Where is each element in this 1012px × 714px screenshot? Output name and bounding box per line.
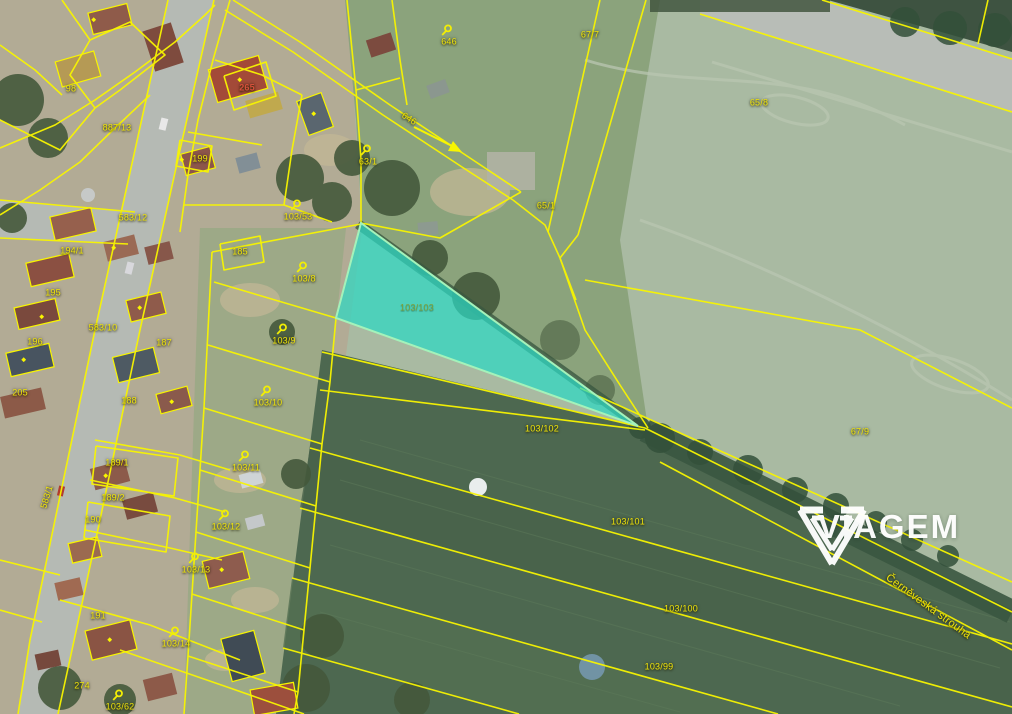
- parcel-label: 194/1: [60, 247, 84, 256]
- parcel-label: 583/12: [119, 214, 148, 223]
- boundary-pin-icon: [296, 261, 308, 273]
- boundary-pin-icon: [188, 552, 200, 564]
- parcel-label: 583/10: [89, 324, 118, 333]
- parcel-label: 887/13: [103, 124, 132, 133]
- map-canvas[interactable]: 98887/1326519964667/765/864663/165/1103/…: [0, 0, 1012, 714]
- parcel-label: 65/1: [537, 202, 555, 211]
- parcel-label: 103/14: [162, 640, 191, 649]
- parcel-label: 103/11: [232, 464, 260, 473]
- boundary-pin-icon: [112, 689, 124, 701]
- highlighted-parcel[interactable]: [336, 223, 638, 426]
- parcel-label: 274: [74, 682, 90, 691]
- parcel-label: 103/8: [292, 275, 316, 284]
- boundary-pin-icon: [260, 385, 272, 397]
- cadastral-lines-layer: [0, 0, 1012, 714]
- parcel-label: 98: [66, 85, 76, 94]
- parcel-label: 185: [232, 248, 248, 257]
- parcel-label: 65/8: [750, 99, 768, 108]
- parcel-label: 103/100: [664, 605, 698, 614]
- parcel-label: 205: [12, 389, 28, 398]
- parcel-label: 196: [27, 338, 43, 347]
- parcel-label: 103/9: [272, 337, 296, 346]
- parcel-label: 199: [192, 155, 208, 164]
- parcel-label: 103/53: [284, 213, 313, 222]
- parcel-label: 191: [90, 612, 106, 621]
- parcel-label: 265: [239, 84, 255, 93]
- parcel-label: 189/2: [101, 494, 125, 503]
- parcel-label: 190: [85, 516, 101, 525]
- parcel-label: 103/13: [182, 566, 211, 575]
- boundary-pin-icon: [276, 323, 288, 335]
- parcel-label: 103/12: [212, 523, 241, 532]
- boundary-pin-icon: [218, 509, 230, 521]
- parcel-label: 103/10: [254, 399, 283, 408]
- parcel-label: 187: [156, 339, 172, 348]
- parcel-label: 103/103: [400, 304, 434, 313]
- parcel-label: 103/102: [525, 425, 559, 434]
- parcel-label: 195: [45, 289, 61, 298]
- parcel-label: 67/7: [581, 31, 599, 40]
- parcel-label: 103/99: [645, 663, 674, 672]
- boundary-pin-icon: [360, 144, 372, 156]
- boundary-pin-icon: [238, 450, 250, 462]
- parcel-label: 646: [441, 38, 457, 47]
- parcel-label: 63/1: [359, 158, 377, 167]
- boundary-pin-icon: [290, 199, 302, 211]
- boundary-pin-icon: [168, 626, 180, 638]
- parcel-label: 103/62: [106, 703, 135, 712]
- boundary-pin-icon: [441, 24, 453, 36]
- parcel-label: 67/9: [851, 428, 869, 437]
- parcel-label: 103/101: [611, 518, 645, 527]
- parcel-label: 188: [121, 397, 137, 406]
- parcel-label: 189/1: [105, 459, 129, 468]
